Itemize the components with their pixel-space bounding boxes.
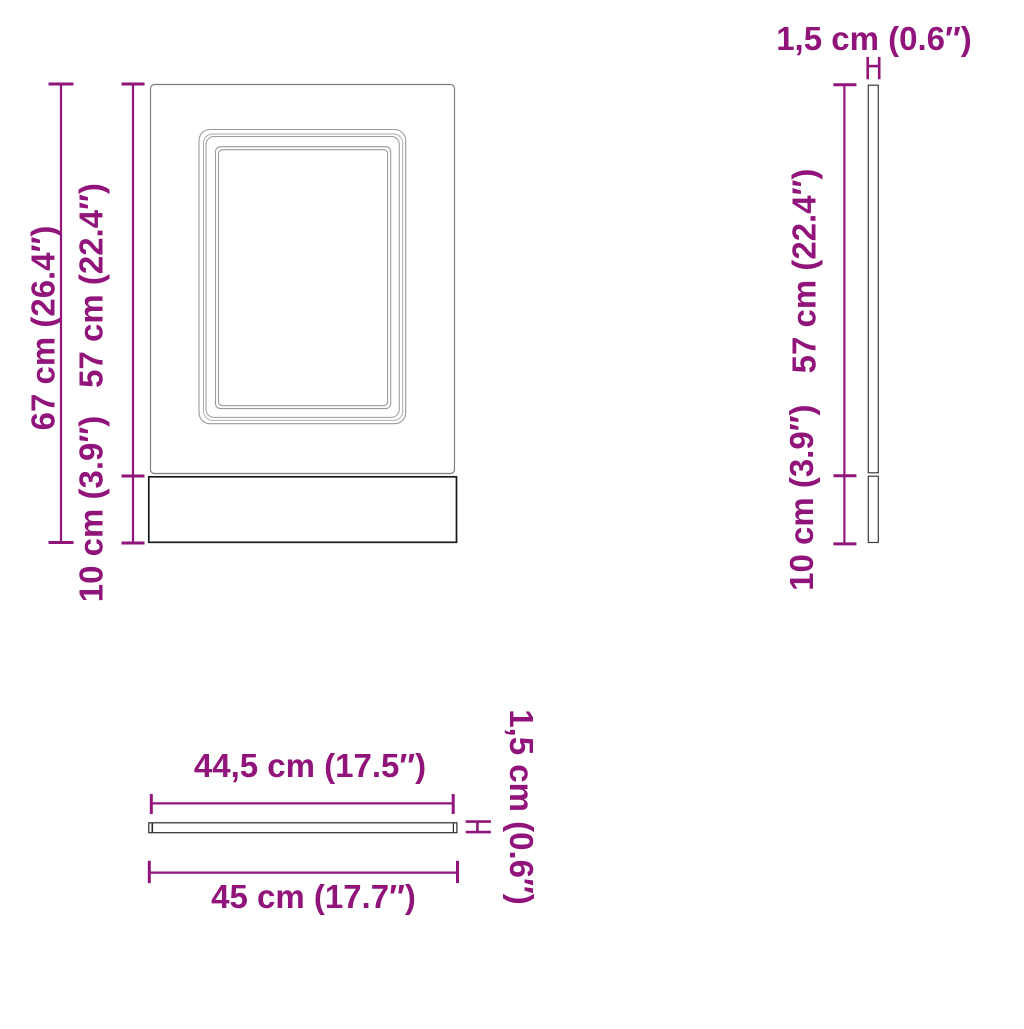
svg-text:57 cm (22.4″): 57 cm (22.4″) (786, 169, 823, 374)
svg-text:57 cm (22.4″): 57 cm (22.4″) (73, 183, 110, 388)
svg-text:67 cm (26.4″): 67 cm (26.4″) (25, 226, 62, 431)
svg-text:44,5 cm (17.5″): 44,5 cm (17.5″) (194, 747, 426, 784)
svg-text:1,5 cm (0.6″): 1,5 cm (0.6″) (776, 20, 972, 57)
svg-text:45 cm (17.7″): 45 cm (17.7″) (211, 878, 416, 915)
svg-text:10 cm (3.9″): 10 cm (3.9″) (73, 416, 110, 602)
svg-text:1,5 cm (0.6″): 1,5 cm (0.6″) (503, 709, 540, 905)
svg-text:10 cm (3.9″): 10 cm (3.9″) (783, 404, 820, 590)
